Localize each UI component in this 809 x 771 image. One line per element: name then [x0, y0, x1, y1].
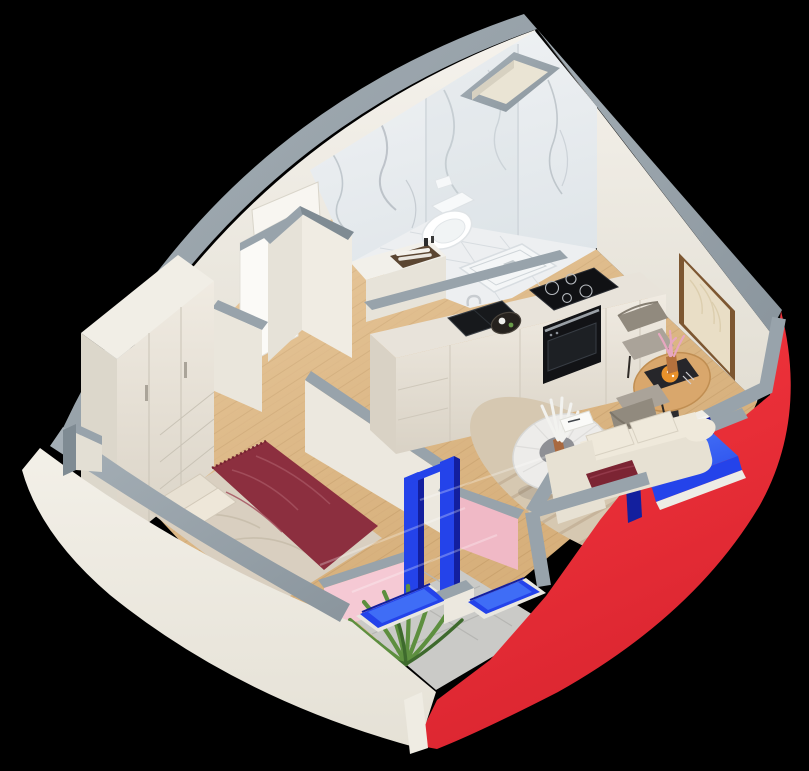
wardrobe-handle: [145, 385, 148, 401]
apartment-3d-render: [0, 0, 809, 771]
toiletry-bottle: [424, 238, 428, 246]
wardrobe-handle: [184, 362, 187, 378]
glazing-post: [440, 456, 454, 598]
floorplan-svg: [0, 0, 809, 771]
flower-vase: [666, 354, 678, 374]
